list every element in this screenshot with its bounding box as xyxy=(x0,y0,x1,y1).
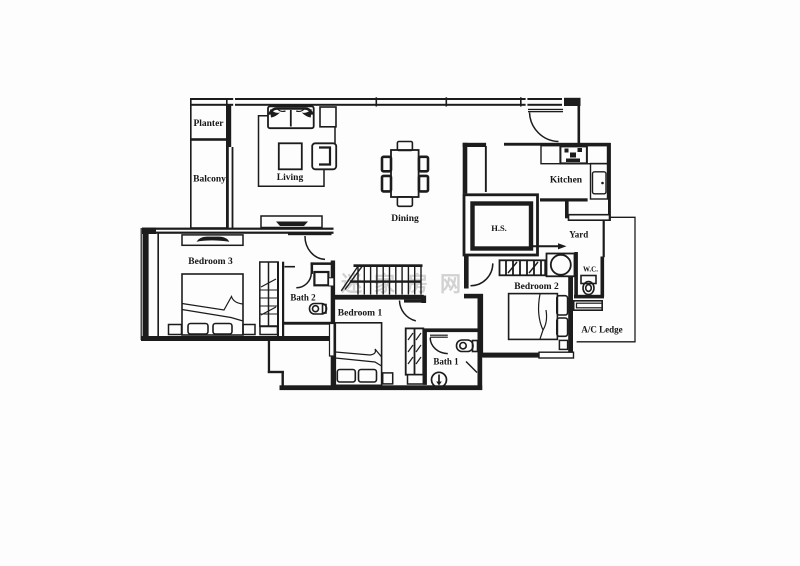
svg-text:W.C.: W.C. xyxy=(583,266,598,274)
svg-text:Dining: Dining xyxy=(391,214,419,224)
svg-text:Bedroom 1: Bedroom 1 xyxy=(338,309,383,319)
svg-text:A/C Ledge: A/C Ledge xyxy=(581,325,622,335)
svg-text:Bath 1: Bath 1 xyxy=(433,357,459,367)
svg-text:Bedroom 2: Bedroom 2 xyxy=(514,282,559,292)
svg-text:Balcony: Balcony xyxy=(193,175,226,185)
svg-text:H.S.: H.S. xyxy=(491,223,507,233)
svg-text:Bath 2: Bath 2 xyxy=(290,293,316,303)
svg-text:Planter: Planter xyxy=(193,119,224,129)
svg-text:Kitchen: Kitchen xyxy=(550,176,583,186)
svg-text:Bedroom 3: Bedroom 3 xyxy=(188,257,233,267)
svg-text:Yard: Yard xyxy=(569,230,588,240)
svg-text:迷家房网: 迷家房网 xyxy=(340,272,473,296)
svg-text:Living: Living xyxy=(277,173,304,183)
